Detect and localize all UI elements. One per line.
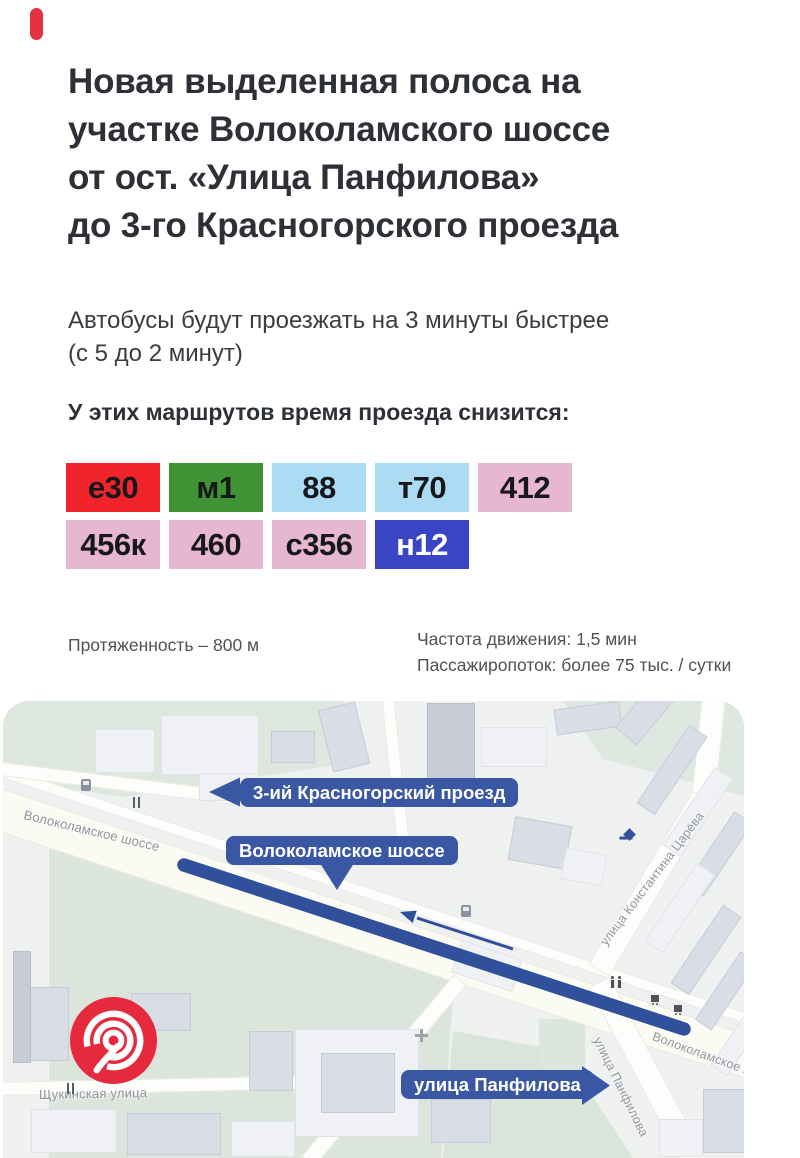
direction-arrow-head-icon: [400, 911, 417, 923]
route-badge-т70: т70: [375, 463, 469, 512]
transport-spiral-icon: [70, 997, 157, 1084]
map: Волоколамское шоссе улица Константина Ца…: [3, 701, 744, 1158]
stat-frequency: Частота движения: 1,5 мин: [417, 626, 731, 652]
intro-text: Автобусы будут проезжать на 3 минуты быс…: [68, 304, 728, 370]
page-title: Новая выделенная полоса на участке Волок…: [68, 58, 758, 250]
stat-length: Протяженность – 800 м: [68, 632, 259, 658]
route-badges-row-2: 456к460с356н12: [66, 520, 469, 569]
route-badge-с356: с356: [272, 520, 366, 569]
route-badge-412: 412: [478, 463, 572, 512]
route-badge-е30: е30: [66, 463, 160, 512]
callout-krasnogorsky: 3-ий Красногорский проезд: [240, 778, 518, 807]
lane-overlay: [3, 701, 744, 1158]
route-badge-456к: 456к: [66, 520, 160, 569]
callout-arrow-left-icon: [209, 778, 240, 807]
title-line: от ост. «Улица Панфилова»: [68, 154, 758, 202]
title-line: до 3-го Красногорского проезда: [68, 202, 758, 250]
stat-passenger-flow: Пассажиропоток: более 75 тыс. / сутки: [417, 652, 731, 678]
red-accent-mark: [30, 8, 43, 40]
route-badge-м1: м1: [169, 463, 263, 512]
title-line: участке Волоколамского шоссе: [68, 106, 758, 154]
route-badges-row-1: е30м188т70412: [66, 463, 572, 512]
moscow-transport-logo: [70, 997, 157, 1084]
callout-volokolamskoye: Волоколамское шоссе: [226, 836, 458, 865]
intro-line: Автобусы будут проезжать на 3 минуты быс…: [68, 304, 728, 337]
stat-block-right: Частота движения: 1,5 мин Пассажиропоток…: [417, 626, 731, 678]
callout-panfilova: улица Панфилова: [401, 1070, 594, 1099]
intro-line: (с 5 до 2 минут): [68, 337, 728, 370]
routes-heading: У этих маршрутов время проезда снизится:: [68, 399, 728, 426]
callout-arrow-down-icon: [321, 864, 354, 890]
route-badge-460: 460: [169, 520, 263, 569]
route-badge-88: 88: [272, 463, 366, 512]
route-badge-н12: н12: [375, 520, 469, 569]
dedicated-lane-line: [184, 865, 684, 1029]
title-line: Новая выделенная полоса на: [68, 58, 758, 106]
